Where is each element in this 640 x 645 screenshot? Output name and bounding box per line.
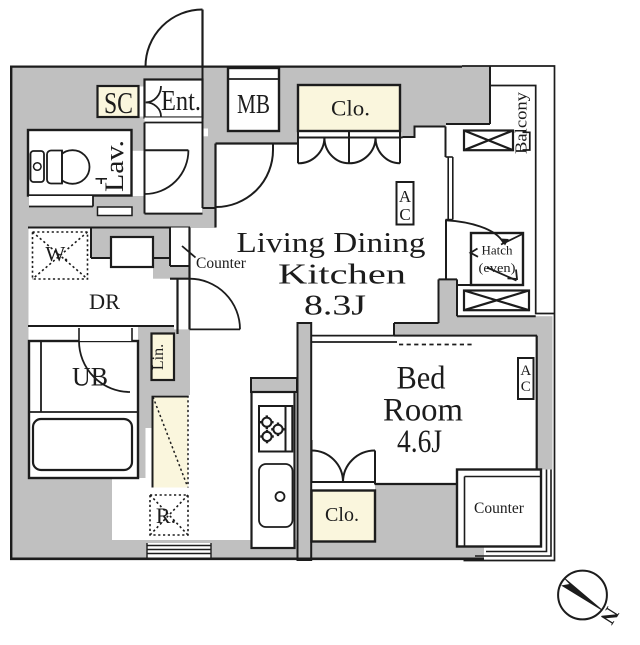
svg-text:Kitchen: Kitchen <box>278 259 407 291</box>
svg-text:Lav.: Lav. <box>100 140 129 192</box>
svg-text:Living Dining: Living Dining <box>237 227 426 259</box>
svg-text:Bed: Bed <box>397 361 446 397</box>
svg-text:R.: R. <box>156 503 176 528</box>
svg-text:Counter: Counter <box>474 500 525 517</box>
svg-text:Balcony: Balcony <box>512 91 531 154</box>
svg-text:4.6J: 4.6J <box>397 424 442 460</box>
svg-text:SC: SC <box>104 85 133 120</box>
svg-text:8.3J: 8.3J <box>304 290 366 322</box>
svg-text:UB: UB <box>72 363 108 392</box>
svg-text:Clo.: Clo. <box>331 96 370 121</box>
svg-text:Lin.: Lin. <box>150 344 167 370</box>
svg-text:Hatch: Hatch <box>482 243 513 258</box>
svg-text:Clo.: Clo. <box>325 504 359 526</box>
svg-text:A: A <box>520 363 531 379</box>
svg-text:DR: DR <box>89 289 120 314</box>
svg-text:A: A <box>399 187 412 206</box>
svg-text:C: C <box>521 379 531 395</box>
svg-text:MB: MB <box>237 89 270 119</box>
svg-text:W.: W. <box>45 242 68 266</box>
svg-text:C: C <box>399 205 410 224</box>
svg-text:Ent.: Ent. <box>161 85 201 117</box>
